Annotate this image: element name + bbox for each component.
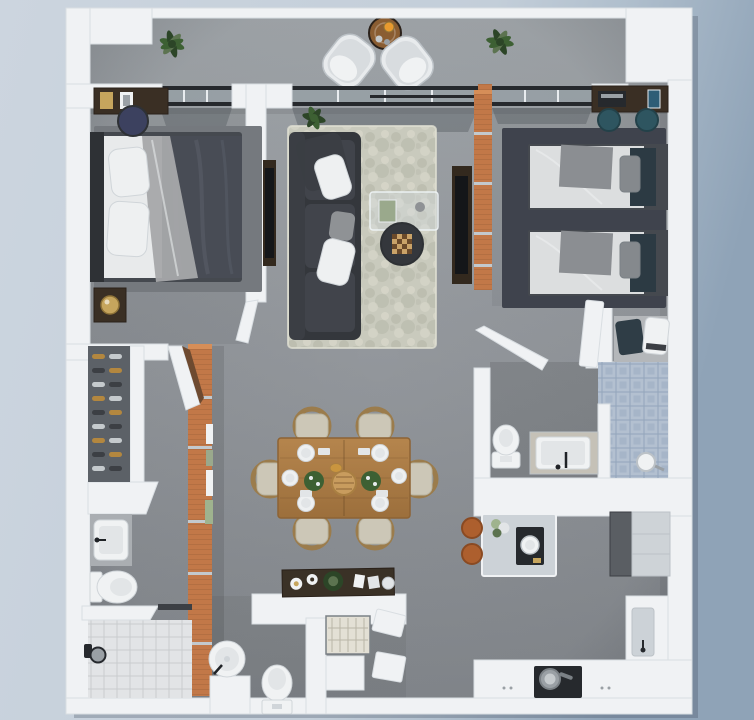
bottom-outer-wall — [66, 698, 692, 714]
pillow — [106, 201, 150, 258]
glass-pane — [492, 90, 592, 102]
kitchen-island — [482, 514, 556, 576]
book — [379, 200, 396, 222]
drawer-handle — [608, 687, 611, 690]
napkin — [358, 448, 370, 455]
vanity-stool — [118, 106, 148, 136]
floor-plan-screenshot — [0, 0, 754, 720]
napkin — [376, 490, 388, 497]
napkin — [318, 448, 330, 455]
top-right-block — [626, 8, 692, 82]
dining-chair — [358, 514, 392, 548]
chess-set — [392, 234, 412, 254]
wine-bottle — [92, 368, 105, 373]
plant-center — [168, 40, 176, 48]
wine-bottle — [92, 382, 105, 387]
dining-table — [278, 438, 410, 518]
nightstand — [94, 288, 126, 322]
mullion — [337, 90, 339, 102]
wine-closet-counter — [88, 482, 158, 514]
shower-divider-wall — [598, 404, 610, 478]
door-rail — [492, 86, 592, 90]
bowl — [415, 202, 425, 212]
single-bed-2 — [528, 230, 668, 296]
sliding-rail — [370, 95, 478, 98]
mortar-band — [188, 572, 212, 575]
shower-bench — [82, 606, 158, 620]
brass-lamp — [101, 296, 119, 314]
book — [648, 90, 660, 108]
glass-projection — [492, 108, 592, 124]
orange-juice-glass — [384, 22, 394, 32]
toilet-seat — [499, 429, 513, 447]
chair-cushion — [359, 518, 391, 544]
round-side-table — [381, 223, 423, 265]
mortar-band — [474, 132, 492, 135]
wine-bottle — [92, 396, 105, 401]
mortar-band — [474, 182, 492, 185]
flower — [309, 476, 313, 480]
mortar-band — [474, 264, 492, 267]
decor-plate — [382, 577, 394, 589]
poster — [205, 500, 213, 524]
sink-inner — [541, 441, 585, 465]
plate-inner — [395, 472, 403, 480]
door-rail — [292, 102, 478, 106]
living-room — [288, 105, 438, 348]
chair-cushion — [296, 414, 328, 440]
bathroom-kitchen-wall — [474, 478, 692, 516]
flower — [366, 476, 370, 480]
right-outer-wall — [668, 80, 692, 714]
pillow — [108, 146, 151, 198]
napkin — [300, 490, 312, 497]
pot-lid — [545, 674, 556, 685]
tv-screen — [455, 176, 468, 274]
plant-center — [496, 38, 504, 46]
wine-bottle — [92, 466, 105, 471]
door-rail — [160, 86, 232, 90]
desk-stool — [598, 109, 620, 131]
mortar-band — [474, 232, 492, 235]
centerpiece-plant — [361, 471, 381, 491]
wine-bottle — [109, 466, 122, 471]
pillow — [620, 156, 640, 192]
door-rail — [492, 102, 592, 106]
mortar-band — [188, 446, 212, 449]
plant-center — [310, 114, 318, 122]
sink-counter — [626, 596, 668, 662]
lamp-highlight — [105, 300, 110, 305]
door-rail — [292, 86, 478, 90]
towel-alcove — [614, 316, 670, 362]
decor-card — [353, 574, 365, 588]
headboard — [656, 144, 668, 210]
wine-bottle — [92, 354, 105, 359]
plate-inner — [375, 498, 385, 508]
cup-inner — [525, 540, 535, 550]
drinking-glass — [376, 36, 383, 43]
faucet-handle — [556, 465, 561, 470]
bathroom-1-west-wall — [474, 368, 490, 478]
throw-pillow-gray — [328, 210, 356, 241]
floor-plan-canvas — [0, 0, 754, 720]
toilet-seat — [268, 668, 286, 690]
mullion — [183, 90, 185, 102]
brick-face — [474, 92, 492, 290]
plate-inner — [286, 474, 295, 483]
laptop — [598, 91, 626, 107]
throw-blanket — [559, 231, 613, 276]
toilet — [492, 425, 520, 468]
brick-cap — [188, 344, 212, 349]
wine-bottle — [109, 354, 122, 359]
pillow — [620, 242, 640, 278]
wine-bottle — [109, 438, 122, 443]
single-bed-1 — [528, 144, 668, 210]
poster — [206, 424, 213, 444]
decor-card — [367, 576, 380, 590]
mullion — [557, 90, 559, 102]
drinking-glass — [384, 39, 390, 45]
glass-door-bedroom-2 — [492, 86, 592, 124]
shower-head-disc — [91, 648, 106, 663]
door-rail — [160, 102, 232, 106]
poster — [206, 470, 213, 496]
woven-trivet — [332, 471, 356, 495]
glass-pane — [160, 90, 232, 102]
picture — [123, 95, 130, 106]
glass-projection — [160, 108, 232, 126]
counter — [474, 660, 692, 698]
bar-stool — [462, 544, 482, 564]
chair-cushion — [359, 414, 391, 440]
wine-bottle — [109, 368, 122, 373]
basin-drain — [224, 656, 230, 662]
drain-strip — [158, 604, 192, 610]
wine-bottle — [92, 410, 105, 415]
flush-button — [500, 456, 512, 462]
chair-cushion — [296, 518, 328, 544]
drawer-handle — [503, 687, 506, 690]
flower — [493, 529, 502, 538]
brick-wall-bedroom-2 — [474, 90, 492, 290]
tv-console — [452, 166, 472, 284]
gold-box — [100, 92, 113, 109]
washer — [326, 616, 370, 654]
desk — [592, 86, 668, 112]
sofa — [289, 131, 361, 340]
flower — [316, 482, 320, 486]
cabinet-run — [632, 512, 670, 576]
plate-inner — [301, 448, 311, 458]
wine-bottle — [109, 424, 122, 429]
sink-counter — [90, 514, 132, 566]
decor-tray — [282, 568, 394, 597]
mullion — [524, 90, 526, 102]
tall-cabinets — [632, 512, 670, 576]
plate-inner — [301, 498, 311, 508]
dark-basket — [615, 318, 645, 355]
wine-bottle — [92, 438, 105, 443]
throw-blanket — [559, 145, 613, 190]
wine-bottle — [109, 396, 122, 401]
headboard — [90, 132, 104, 282]
wine-bottle — [109, 452, 122, 457]
flush-button — [272, 704, 282, 709]
bread — [330, 464, 342, 473]
poster — [206, 450, 213, 466]
laundry-divider-wall — [306, 618, 326, 714]
tv-panel — [263, 160, 276, 266]
wine-bottle — [109, 410, 122, 415]
round-basin — [209, 641, 250, 714]
flower — [373, 482, 377, 486]
centerpiece-plant — [304, 471, 324, 491]
top-left-block — [88, 8, 152, 44]
shower-head-disc — [637, 453, 655, 471]
brick-cap — [474, 90, 492, 94]
bar-stool — [462, 518, 482, 538]
utility-cabinet — [326, 656, 364, 690]
tv-screen — [265, 168, 274, 258]
toilet — [90, 571, 137, 603]
double-bed — [90, 132, 242, 282]
toilet-seat — [110, 578, 132, 596]
basin-stand — [210, 676, 250, 714]
glass-door-bedroom-1 — [160, 86, 232, 126]
drawer-handle — [601, 687, 604, 690]
headboard — [656, 230, 668, 296]
wine-bottle — [92, 452, 105, 457]
plate-inner — [375, 448, 385, 458]
toilet — [262, 665, 292, 714]
vanity — [530, 432, 598, 474]
laptop-keyboard — [601, 94, 623, 98]
dining-chair — [295, 514, 329, 548]
coffee-machine — [516, 527, 544, 565]
wine-bottle — [92, 424, 105, 429]
wine-closet — [88, 346, 130, 482]
desk-stool — [636, 109, 658, 131]
wine-bottle — [109, 382, 122, 387]
fridge — [610, 512, 632, 576]
drawer-handle — [510, 687, 513, 690]
mullion — [206, 90, 208, 102]
utility-appliance — [372, 652, 406, 683]
label — [533, 558, 541, 563]
wine-closet-wall — [130, 346, 144, 482]
cooktop-counter — [474, 660, 692, 698]
